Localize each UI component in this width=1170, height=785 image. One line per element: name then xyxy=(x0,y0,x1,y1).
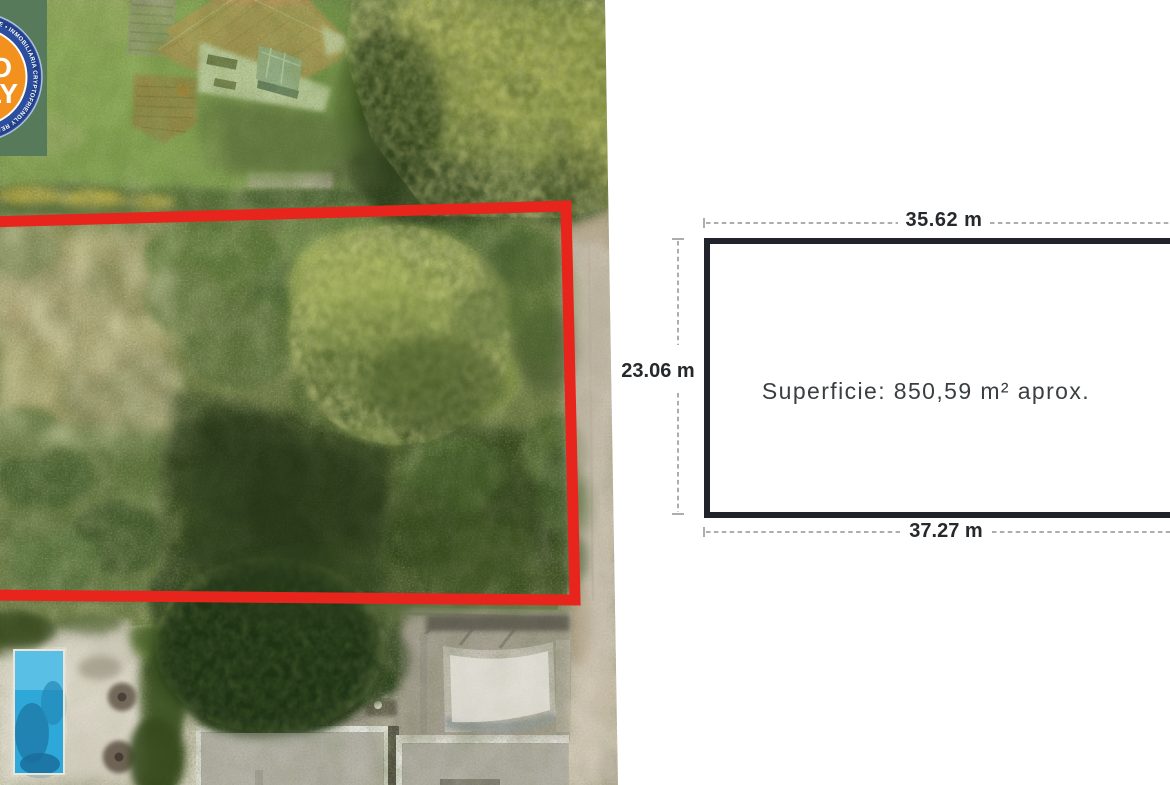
svg-text:LY: LY xyxy=(0,78,18,109)
svg-text:37.27 m: 37.27 m xyxy=(909,520,982,542)
svg-text:Superficie: 850,59 m² aprox.: Superficie: 850,59 m² aprox. xyxy=(762,378,1090,404)
svg-text:35.62 m: 35.62 m xyxy=(906,209,983,231)
svg-text:23.06 m: 23.06 m xyxy=(621,360,694,382)
